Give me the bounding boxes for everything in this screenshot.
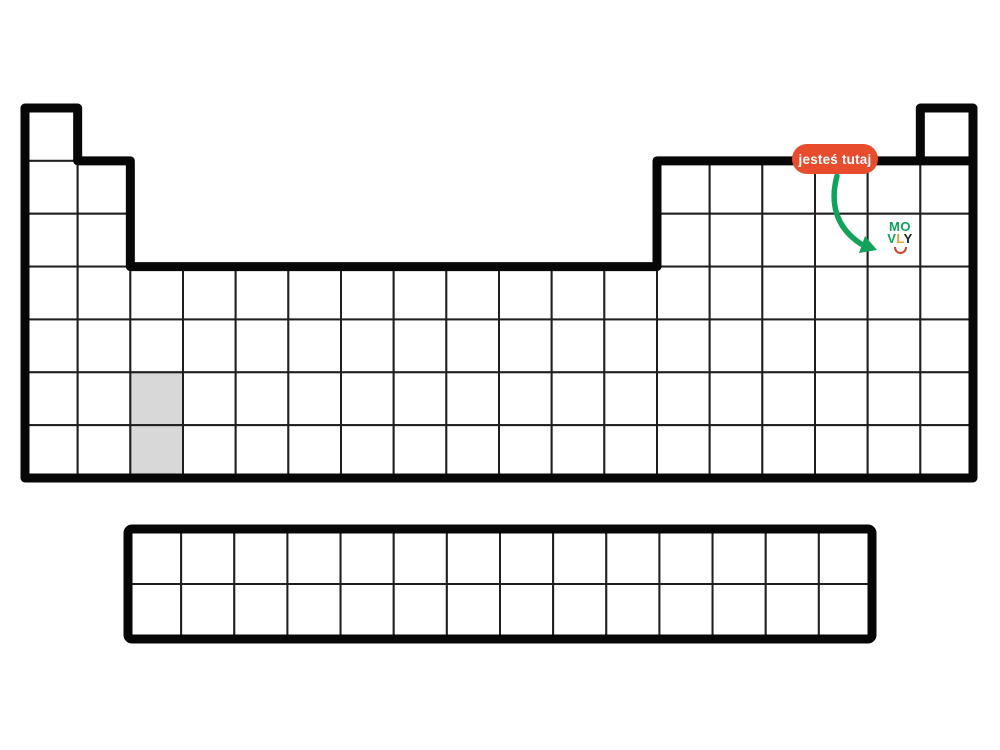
element-cell-r7c17[interactable] [868,425,921,478]
element-cell-r6c6[interactable] [288,372,341,425]
element-cell-r6c9[interactable] [446,372,499,425]
element-cell-r3c1[interactable] [25,214,78,267]
element-cell-r4c6[interactable] [288,267,341,320]
element-cell-r4c10[interactable] [499,267,552,320]
element-cell-r5c18[interactable] [920,319,973,372]
element-cell-r3c2[interactable] [78,214,131,267]
element-cell-r2c1[interactable] [25,161,78,214]
element-cell-r7c18[interactable] [920,425,973,478]
element-cell-r6c13[interactable] [657,372,710,425]
element-cell-r2c2[interactable] [78,161,131,214]
fblock-cell-r2c8[interactable] [500,584,553,639]
element-cell-r1c1[interactable] [25,108,78,161]
element-cell-r2c18[interactable] [920,161,973,214]
element-cell-r6c12[interactable] [604,372,657,425]
fblock-cell-r2c3[interactable] [234,584,287,639]
fblock-cell-r1c13[interactable] [766,529,819,584]
fblock-cell-r2c10[interactable] [606,584,659,639]
element-cell-r4c12[interactable] [604,267,657,320]
element-cell-r7c1[interactable] [25,425,78,478]
element-cell-r5c10[interactable] [499,319,552,372]
element-cell-r4c1[interactable] [25,267,78,320]
element-cell-r6c8[interactable] [394,372,447,425]
element-cell-r4c9[interactable] [446,267,499,320]
element-cell-r7c15[interactable] [762,425,815,478]
fblock-cell-r1c10[interactable] [606,529,659,584]
logo-letter-l: L [896,231,903,246]
element-cell-r6c16[interactable] [815,372,868,425]
element-cell-r5c6[interactable] [288,319,341,372]
element-cell-r5c1[interactable] [25,319,78,372]
element-cell-r5c17[interactable] [868,319,921,372]
element-cell-r7c10[interactable] [499,425,552,478]
element-cell-r7c2[interactable] [78,425,131,478]
element-cell-r4c14[interactable] [710,267,763,320]
fblock-cell-r1c7[interactable] [447,529,500,584]
highlighted-element-cell-r7c3[interactable] [130,425,183,478]
element-cell-r7c6[interactable] [288,425,341,478]
element-cell-r7c9[interactable] [446,425,499,478]
element-cell-r5c4[interactable] [183,319,236,372]
you-are-here-badge: jesteś tutaj [792,144,878,174]
element-cell-r2c17[interactable] [868,161,921,214]
element-cell-r5c15[interactable] [762,319,815,372]
element-cell-r6c17[interactable] [868,372,921,425]
fblock-cell-r2c4[interactable] [287,584,340,639]
fblock-cell-r1c6[interactable] [394,529,447,584]
fblock-cell-r2c1[interactable] [128,584,181,639]
element-cell-r4c4[interactable] [183,267,236,320]
element-cell-r1c18[interactable] [920,108,973,161]
element-cell-r4c3[interactable] [130,267,183,320]
element-cell-r2c14[interactable] [710,161,763,214]
fblock-cell-r2c2[interactable] [181,584,234,639]
element-cell-r7c11[interactable] [552,425,605,478]
element-cell-r4c13[interactable] [657,267,710,320]
fblock-cell-r1c4[interactable] [287,529,340,584]
fblock-cell-r2c14[interactable] [819,584,872,639]
highlighted-element-cell-r6c3[interactable] [130,372,183,425]
fblock-cell-r2c6[interactable] [394,584,447,639]
element-cell-r7c16[interactable] [815,425,868,478]
element-cell-r7c12[interactable] [604,425,657,478]
element-cell-r4c16[interactable] [815,267,868,320]
element-cell-r5c2[interactable] [78,319,131,372]
element-cell-r7c8[interactable] [394,425,447,478]
element-cell-r5c13[interactable] [657,319,710,372]
periodic-table-worksheet: jesteś tutaj MO VLY [0,0,1000,750]
element-cell-r5c11[interactable] [552,319,605,372]
element-cell-r7c13[interactable] [657,425,710,478]
fblock-cell-r1c2[interactable] [181,529,234,584]
element-cell-r5c8[interactable] [394,319,447,372]
element-cell-r6c15[interactable] [762,372,815,425]
element-cell-r7c5[interactable] [236,425,289,478]
element-cell-r6c1[interactable] [25,372,78,425]
fblock-cell-r1c12[interactable] [713,529,766,584]
movly-logo-line2: VLY [879,233,921,245]
element-cell-r4c18[interactable] [920,267,973,320]
element-cell-r4c17[interactable] [868,267,921,320]
fblock-cell-r2c7[interactable] [447,584,500,639]
fblock-cell-r1c11[interactable] [659,529,712,584]
element-cell-r5c14[interactable] [710,319,763,372]
element-cell-r4c15[interactable] [762,267,815,320]
element-cell-r6c7[interactable] [341,372,394,425]
element-cell-r7c14[interactable] [710,425,763,478]
element-cell-r5c16[interactable] [815,319,868,372]
fblock-cell-r2c5[interactable] [341,584,394,639]
element-cell-r5c5[interactable] [236,319,289,372]
logo-letter-y: Y [904,231,913,246]
fblock-cell-r1c9[interactable] [553,529,606,584]
element-cell-r5c3[interactable] [130,319,183,372]
element-cell-r3c14[interactable] [710,214,763,267]
fblock-cell-r1c3[interactable] [234,529,287,584]
element-cell-r5c9[interactable] [446,319,499,372]
movly-logo: MO VLY [879,221,921,254]
fblock-cell-r2c11[interactable] [659,584,712,639]
element-cell-r4c2[interactable] [78,267,131,320]
element-cell-r6c14[interactable] [710,372,763,425]
element-cell-r5c7[interactable] [341,319,394,372]
fblock-cell-r1c8[interactable] [500,529,553,584]
fblock-cell-r2c9[interactable] [553,584,606,639]
fblock-cell-r2c13[interactable] [766,584,819,639]
movly-logo-smile-icon [894,247,907,254]
element-cell-r6c5[interactable] [236,372,289,425]
fblock-cell-r1c5[interactable] [341,529,394,584]
element-cell-r6c10[interactable] [499,372,552,425]
periodic-table-diagram [0,0,1000,750]
element-cell-r6c11[interactable] [552,372,605,425]
element-cell-r3c15[interactable] [762,214,815,267]
element-cell-r3c18[interactable] [920,214,973,267]
element-cell-r2c13[interactable] [657,161,710,214]
element-cell-r4c8[interactable] [394,267,447,320]
element-cell-r4c7[interactable] [341,267,394,320]
element-cell-r6c18[interactable] [920,372,973,425]
fblock-cell-r1c1[interactable] [128,529,181,584]
fblock-cell-r1c14[interactable] [819,529,872,584]
logo-letter-v: V [887,231,896,246]
element-cell-r6c4[interactable] [183,372,236,425]
element-cell-r7c7[interactable] [341,425,394,478]
element-cell-r4c5[interactable] [236,267,289,320]
element-cell-r3c13[interactable] [657,214,710,267]
element-cell-r4c11[interactable] [552,267,605,320]
you-are-here-label: jesteś tutaj [799,152,872,167]
element-cell-r5c12[interactable] [604,319,657,372]
element-cell-r6c2[interactable] [78,372,131,425]
fblock-cell-r2c12[interactable] [713,584,766,639]
element-cell-r7c4[interactable] [183,425,236,478]
